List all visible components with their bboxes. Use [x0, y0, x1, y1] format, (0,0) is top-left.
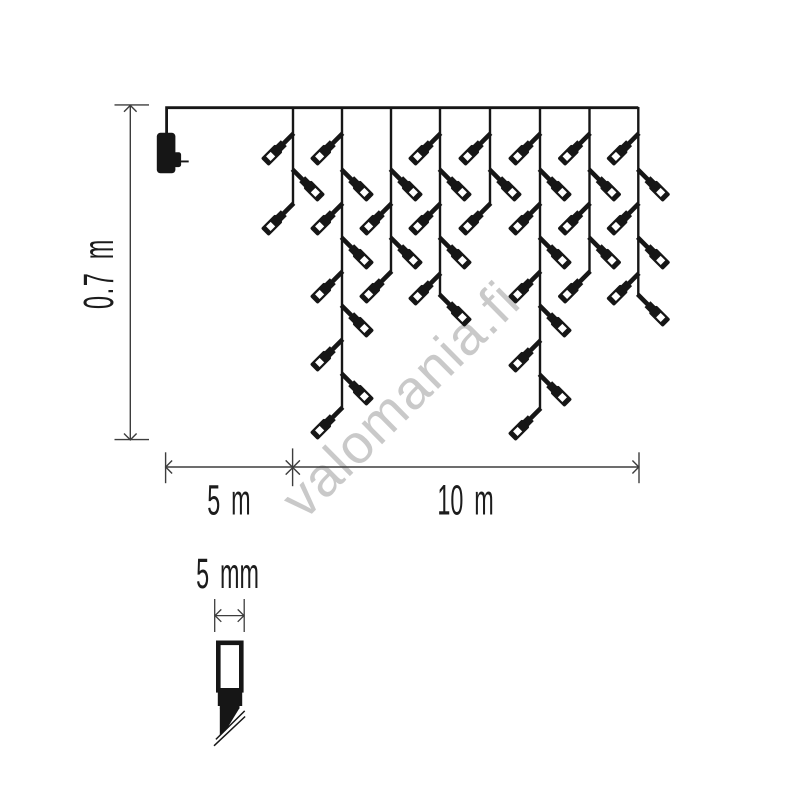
svg-text:10 m: 10 m: [437, 477, 493, 524]
svg-text:0.7 m: 0.7 m: [76, 238, 123, 309]
svg-text:5 mm: 5 mm: [196, 551, 259, 598]
svg-text:5 m: 5 m: [207, 477, 250, 524]
